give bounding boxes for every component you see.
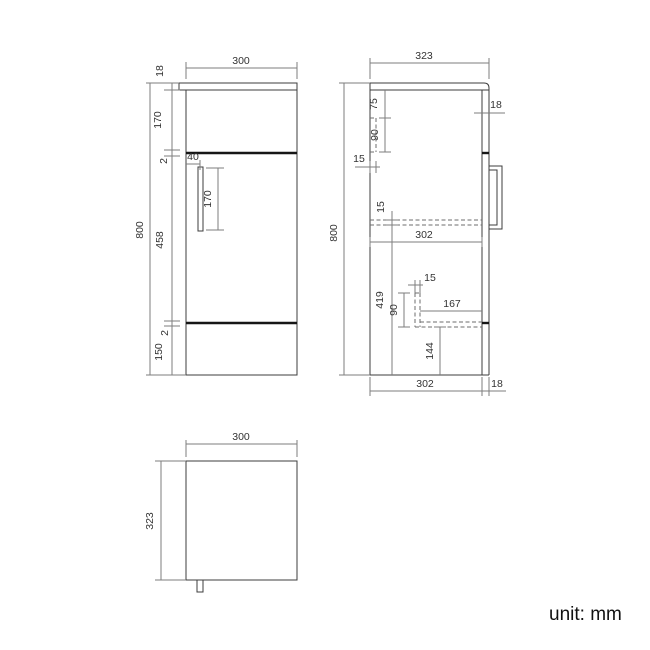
dimension-drawing: 3008001817024582150401703238007590151530… [0,0,650,650]
side-view-handle-outer [489,166,502,229]
front-bottom-section-label: 150 [153,343,165,361]
technical-drawing-page: 3008001817024582150401703238007590151530… [0,0,650,650]
front-upper-section-label: 170 [152,111,164,129]
side-recess-depth-label: 167 [443,298,461,310]
side-support-width-label: 15 [424,272,436,284]
front-handle-length-label: 170 [202,190,214,208]
side-depth-label: 323 [415,50,433,62]
side-bottom-depth-label: 302 [416,378,434,390]
front-lower-gap-label: 2 [159,330,171,336]
side-recess-height-label: 144 [424,342,436,360]
side-internal-depth-label: 302 [415,229,433,241]
front-door-height-label: 458 [154,231,166,249]
top-depth-label: 323 [144,512,156,530]
side-view-countertop [370,83,489,90]
front-top-thickness-label: 18 [154,65,166,77]
side-shelf-thickness-label: 15 [375,201,387,213]
top-view-handle [197,580,203,592]
side-bracket-height-label: 90 [369,129,381,141]
front-upper-gap-label: 2 [158,158,170,164]
top-view-body [186,461,297,580]
front-view-countertop [179,83,297,90]
side-shelf-to-bottom-label: 419 [374,291,386,309]
side-bracket-offset-label: 75 [368,98,380,110]
front-handle-offset-label: 40 [187,151,199,163]
side-view-handle-inner [489,170,497,225]
side-backpanel-label: 15 [353,153,365,165]
unit-label: unit: mm [549,604,622,626]
front-view-body [186,90,297,375]
front-width-label: 300 [232,55,250,67]
side-panel-thickness-label: 18 [490,99,502,111]
side-bottom-front-label: 18 [491,378,503,390]
top-width-label: 300 [232,431,250,443]
side-height-label: 800 [328,224,340,242]
side-support-height-label: 90 [388,304,400,316]
front-height-label: 800 [134,221,146,239]
